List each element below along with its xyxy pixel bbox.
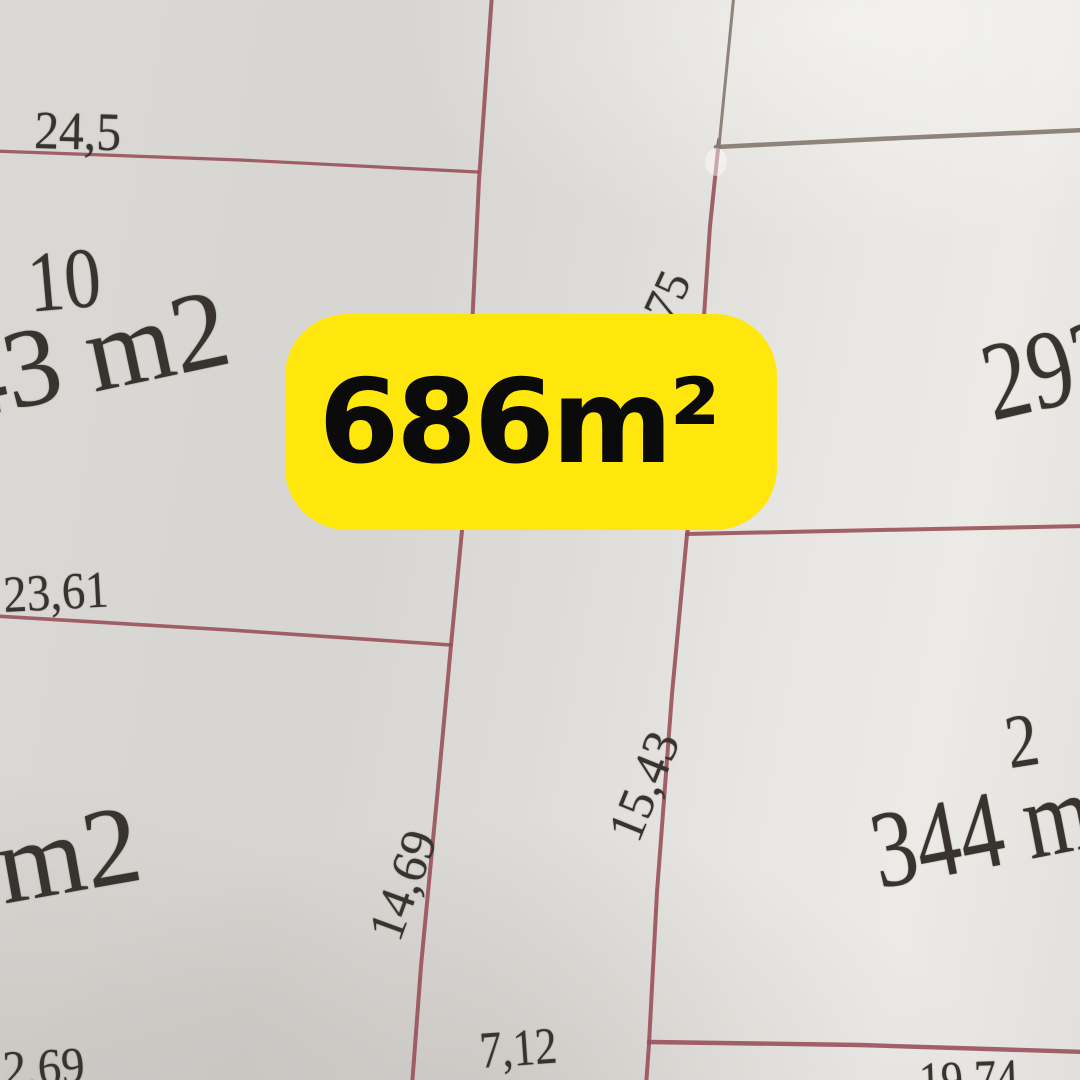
measurement-bottom-center-width: 7,12 [478, 1021, 559, 1078]
area-badge: 686m² [285, 314, 777, 530]
measurement-mid-width: 23,61 [2, 564, 110, 621]
measurement-bottom-left-width: 22,69 [0, 1040, 86, 1080]
boundary-line-left-vertical [412, 0, 492, 1080]
cadastral-plan-photo: 24,5 10 43 m2 23,61 m2 22,69 14,69 15,43… [0, 0, 1080, 1080]
boundary-line-top-right-horizontal [716, 130, 1080, 147]
boundary-line-top-vertical-grey [719, 0, 734, 146]
parcel-lower-left-area: m2 [0, 787, 148, 922]
area-badge-label: 686m² [319, 355, 718, 490]
boundary-line-mid-right-horizontal [687, 526, 1080, 534]
paper-glare-spot [705, 148, 727, 176]
measurement-top-width: 24,5 [34, 103, 122, 159]
measurement-bottom-right-width: 19,74 [918, 1053, 1019, 1080]
boundary-lines-svg [0, 0, 1080, 1080]
